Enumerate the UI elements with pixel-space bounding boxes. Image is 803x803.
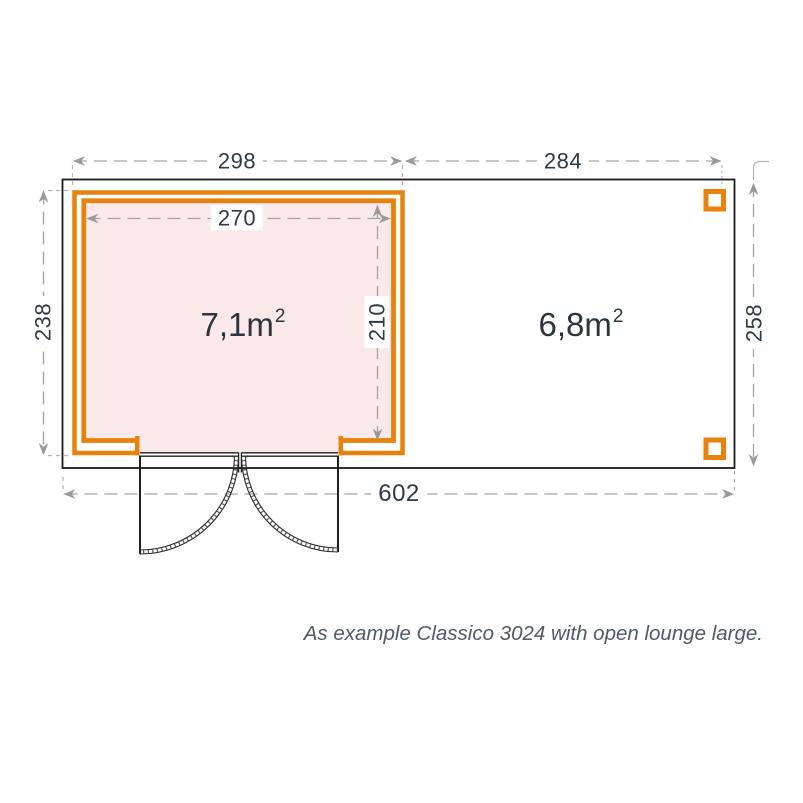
post-top-right xyxy=(706,192,724,210)
floor-plan: 298 284 270 238 210 258 602 7,1m2 6,8m2 … xyxy=(0,0,803,803)
dim-label-room-height: 238 xyxy=(30,296,55,348)
door-opening xyxy=(140,435,339,453)
area-room-value: 7,1m xyxy=(201,306,274,343)
dim-label-lounge-width: 284 xyxy=(537,148,589,173)
door-swing-arc-right xyxy=(242,456,339,553)
door-swing-arc-left xyxy=(140,456,239,555)
area-label-room: 7,1m2 xyxy=(201,306,286,344)
area-room-sup: 2 xyxy=(275,306,286,327)
dim-label-inner-width: 270 xyxy=(211,205,263,230)
dim-label-room-width: 298 xyxy=(211,148,263,173)
dim-label-total-width: 602 xyxy=(371,480,427,508)
area-lounge-value: 6,8m xyxy=(539,306,612,343)
floor-plan-drawing xyxy=(0,0,803,803)
area-label-lounge: 6,8m2 xyxy=(539,306,624,344)
dim-label-total-height: 258 xyxy=(741,297,766,349)
post-bottom-right xyxy=(706,440,724,458)
area-lounge-sup: 2 xyxy=(613,306,624,327)
caption: As example Classico 3024 with open loung… xyxy=(304,622,763,646)
dim-label-inner-height: 210 xyxy=(364,296,389,348)
